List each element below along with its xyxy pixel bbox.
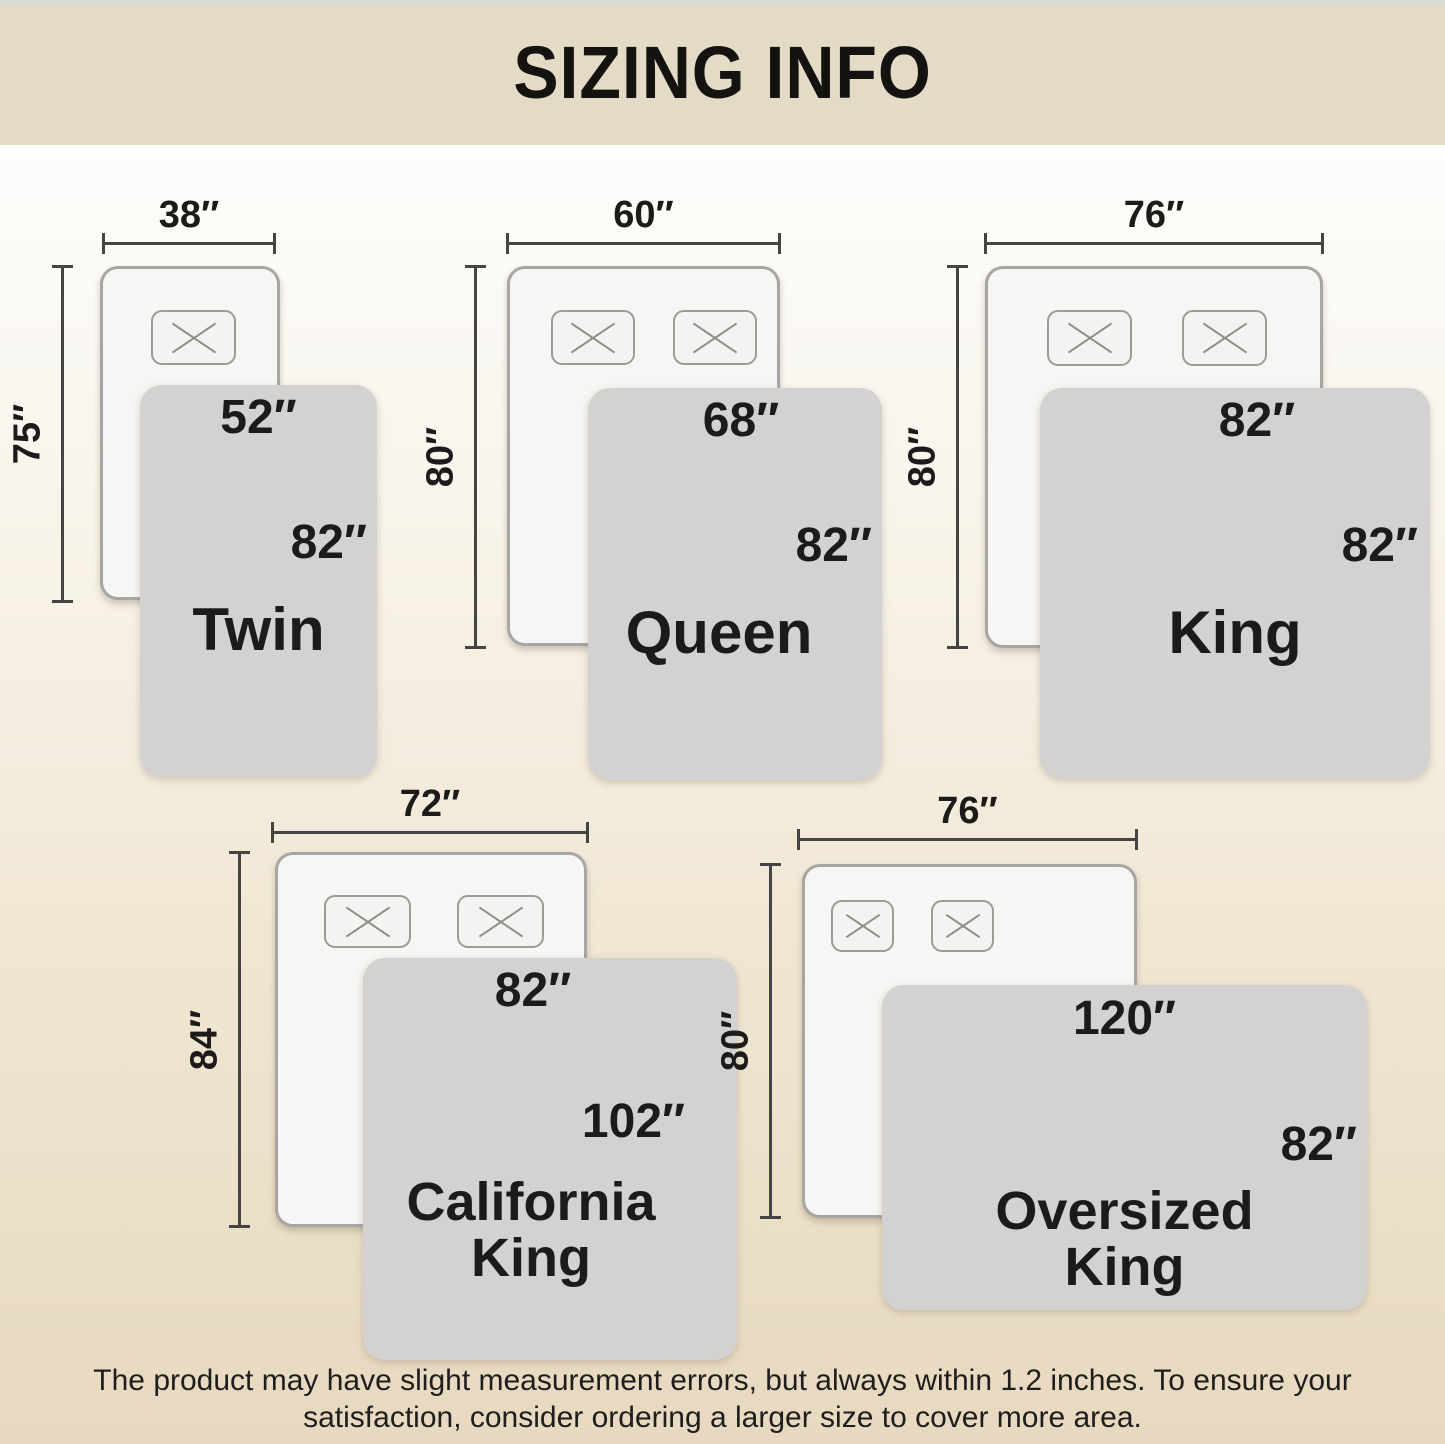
disclaimer-line-1: The product may have slight measurement … [0,1362,1445,1399]
dimension-line-length: 80″ [769,864,772,1218]
bed-width-label: 38″ [159,194,219,237]
bed-width-label: 72″ [400,783,460,826]
blanket-illustration: 82″ 102″ California King [363,958,737,1360]
top-edge-strip [0,0,1445,4]
bed-length-label: 84″ [184,1009,227,1069]
blanket-length-label: 82″ [291,515,367,570]
pillow [1047,310,1132,366]
pillow [551,310,635,365]
blanket-width-label: 52″ [220,390,296,445]
blanket-illustration: 52″ 82″ Twin [140,385,377,777]
blanket-length-label: 82″ [1342,518,1418,573]
pillow-cross-icon [1184,312,1265,364]
bed-width-label: 60″ [613,194,673,237]
dimension-line-length: 75″ [61,266,64,602]
pillow [673,310,757,365]
dimension-line-width: 72″ [272,831,588,834]
bed-width-label: 76″ [937,790,997,833]
size-name: Twin [192,599,324,661]
size-name: Queen [626,602,813,664]
pillow-cross-icon [153,312,234,363]
pillow [324,895,411,948]
pillow-cross-icon [553,312,633,363]
pillow-cross-icon [833,902,892,950]
page-title: SIZING INFO [513,30,932,115]
disclaimer: The product may have slight measurement … [0,1362,1445,1436]
pillow-cross-icon [326,897,409,946]
blanket-length-label: 82″ [796,518,872,573]
blanket-illustration: 120″ 82″ Oversized King [882,985,1367,1310]
pillow [1182,310,1267,366]
dimension-line-width: 38″ [103,242,275,245]
pillow-cross-icon [933,902,992,950]
disclaimer-line-2: satisfaction, consider ordering a larger… [0,1399,1445,1436]
blanket-illustration: 82″ 82″ King [1040,388,1430,778]
bed-length-label: 80″ [420,427,463,487]
blanket-width-label: 120″ [1073,991,1176,1046]
blanket-width-label: 82″ [495,963,571,1018]
pillow-cross-icon [1049,312,1130,364]
pillow-cross-icon [675,312,755,363]
bed-length-label: 75″ [7,404,50,464]
size-name: Oversized King [955,1183,1295,1295]
dimension-line-length: 80″ [474,266,477,648]
pillow-cross-icon [459,897,542,946]
blanket-width-label: 82″ [1219,393,1295,448]
bed-length-label: 80″ [902,427,945,487]
dimension-line-width: 60″ [507,242,780,245]
dimension-line-length: 80″ [956,266,959,648]
title-banner: SIZING INFO [0,0,1445,145]
bed-length-label: 80″ [715,1011,758,1071]
size-name: King [1168,602,1301,664]
blanket-length-label: 82″ [1281,1117,1357,1172]
sizing-info-infographic: SIZING INFO 38″ 75″ 52″ 82″ Twin 60″ 80″ [0,0,1445,1444]
blanket-length-label: 102″ [582,1094,685,1149]
blanket-width-label: 68″ [703,393,779,448]
pillow [457,895,544,948]
size-name: California King [361,1174,701,1286]
bed-width-label: 76″ [1124,194,1184,237]
dimension-line-width: 76″ [798,838,1137,841]
pillow [931,900,994,952]
pillow [831,900,894,952]
dimension-line-length: 84″ [238,852,241,1227]
pillow [151,310,236,365]
blanket-illustration: 68″ 82″ Queen [588,388,882,780]
dimension-line-width: 76″ [985,242,1323,245]
